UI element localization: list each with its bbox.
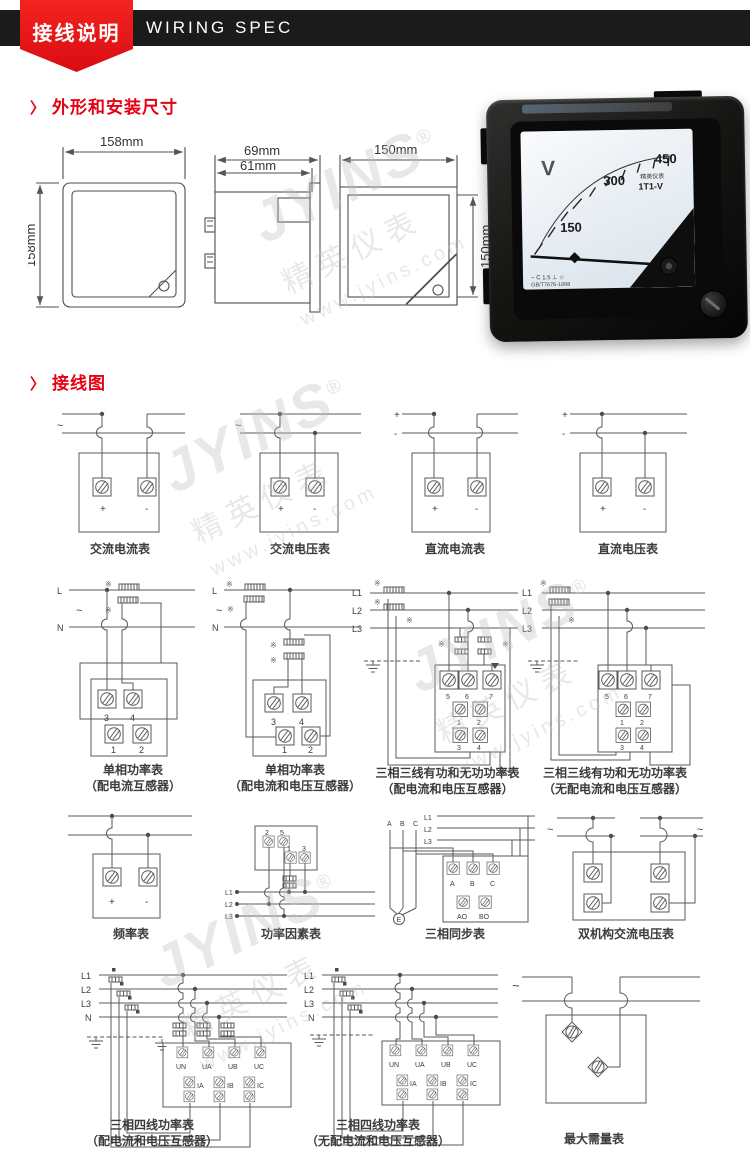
caption-line1: 三相四线功率表 [77, 1117, 227, 1133]
diagram-dual-ac-voltmeter: ~ ~ [545, 812, 710, 935]
line-label: L3 [424, 839, 432, 846]
terminal-number: 7 [489, 694, 493, 701]
header-title-zh: 接线说明 [20, 0, 133, 46]
header-title-en: WIRING SPEC [146, 18, 293, 38]
diagram-frequency-meter: + - [60, 812, 200, 929]
source-label: ~ [547, 824, 553, 836]
star-mark: ※ [105, 580, 112, 589]
panel-meter-photo: V 150 300 450 精英仪表 1T1-V ~ C 1.5 ⊥ ☆ GB/… [486, 96, 748, 342]
caption-line1: 三相三线有功和无功功率表 [360, 765, 535, 781]
terminal-number: 3 [620, 745, 624, 752]
caption-line1: 三相三线有功和无功功率表 [525, 765, 705, 781]
terminal-label: + [109, 897, 115, 908]
terminal-number: 2 [139, 745, 144, 755]
line-label: L2 [522, 606, 532, 616]
diagram-caption: 功率因素表 [221, 926, 361, 942]
terminal-label: B [470, 881, 475, 888]
caption-line2: （无配电流和电压互感器） [525, 781, 705, 797]
terminal-number: 5 [446, 694, 450, 701]
terminal-label: + [432, 504, 438, 515]
terminal-label: UN [176, 1064, 186, 1071]
page: 接线说明 WIRING SPEC 〉外形和安装尺寸 158mm 158mm 69… [0, 0, 750, 1169]
diagram-3p3w-power-ctpt: L1 L2 L3 ※ ※ ※ ※ ※ 5 6 7 1 2 3 4 [350, 575, 525, 780]
line-label: + [562, 410, 568, 421]
line-label: + [394, 410, 400, 421]
caption-line1: 三相四线功率表 [303, 1117, 453, 1133]
terminal-label: IA [410, 1081, 417, 1088]
star-mark: ※ [568, 616, 575, 625]
dims-title-text: 外形和安装尺寸 [52, 98, 178, 117]
star-mark: ※ [374, 579, 381, 588]
terminal-label: UN [389, 1062, 399, 1069]
phase-label: A [387, 821, 392, 828]
star-mark: ※ [502, 640, 509, 649]
line-label: L1 [81, 971, 91, 981]
terminal-label: AO [457, 914, 468, 921]
diagram-caption: 直流电压表 [563, 541, 693, 557]
dim-side-depth: 69mm [244, 143, 280, 158]
wiring-title-text: 接线图 [52, 374, 106, 393]
star-mark: ※ [406, 616, 413, 625]
terminal-label: IC [257, 1083, 264, 1090]
terminal-number: 4 [299, 717, 304, 727]
terminal-number: 4 [130, 713, 135, 723]
source-label: ~ [697, 824, 703, 836]
source-label: ~ [76, 605, 82, 617]
terminal-label: IB [440, 1081, 447, 1088]
diagram-caption: 直流电流表 [390, 541, 520, 557]
diagram-caption: 双机构交流电压表 [545, 926, 707, 942]
line-label: L2 [81, 985, 91, 995]
terminal-label: + [100, 504, 106, 515]
line-label: L2 [352, 606, 362, 616]
diagram-caption: 三相三线有功和无功功率表 （配电流和电压互感器） [360, 765, 535, 797]
terminal-label: UC [467, 1062, 477, 1069]
line-label: L [212, 586, 217, 596]
diagram-sync-meter: A B C E L1 L2 L3 A B C AO BO [385, 812, 550, 935]
line-label: L1 [304, 971, 314, 981]
caption-line2: （无配电流和电压互感器） [303, 1133, 453, 1149]
terminal-number: 4 [640, 745, 644, 752]
terminal-number: 2 [477, 720, 481, 727]
line-label: N [57, 623, 64, 633]
line-label: L2 [304, 985, 314, 995]
star-mark: ※ [374, 598, 381, 607]
diagram-1p-power-ctpt: L ~ N ※ ※ ※ ※ 3 4 1 2 [212, 575, 367, 770]
source-label: ~ [235, 420, 241, 432]
star-mark: ※ [540, 579, 547, 588]
line-label: L [57, 586, 62, 596]
terminal-number: 1 [620, 720, 624, 727]
caption-line2: （配电流和电压互感器） [215, 778, 375, 794]
dim-side-body: 61mm [240, 158, 276, 173]
line-label: L2 [424, 827, 432, 834]
dim-front-width: 158mm [100, 135, 143, 149]
terminal-label: - [145, 897, 148, 908]
phase-label: B [400, 821, 405, 828]
line-label: L1 [352, 588, 362, 598]
dimension-drawings: 158mm 158mm 69mm 61mm 150mm 150mm [28, 135, 493, 325]
line-label: L3 [81, 999, 91, 1009]
terminal-label: UC [254, 1064, 264, 1071]
dial-glass [520, 129, 695, 290]
terminal-number: 2 [640, 720, 644, 727]
terminal-label: - [145, 504, 148, 515]
line-label: L3 [225, 914, 233, 921]
diagram-caption: 三相四线功率表 （配电流和电压互感器） [77, 1117, 227, 1149]
diagram-3p3w-power-noctpt: L1 L2 L3 ※ ※ 5 6 7 1 2 3 4 [520, 575, 720, 780]
terminal-label: IA [197, 1083, 204, 1090]
chevron-icon: 〉 [30, 100, 46, 117]
dim-front-height: 158mm [28, 224, 38, 267]
terminal-label: UA [202, 1064, 212, 1071]
terminal-number: 3 [457, 745, 461, 752]
line-label: N [212, 623, 219, 633]
terminal-label: IC [470, 1081, 477, 1088]
diagram-caption: 三相四线功率表 （无配电流和电压互感器） [303, 1117, 453, 1149]
line-label: L1 [522, 588, 532, 598]
terminal-label: IB [227, 1083, 234, 1090]
terminal-label: + [278, 504, 284, 515]
line-label: - [562, 429, 565, 440]
star-mark: ※ [438, 640, 445, 649]
line-label: N [308, 1013, 315, 1023]
terminal-label: UA [415, 1062, 425, 1069]
source-label: ~ [512, 978, 520, 993]
dims-section-title: 〉外形和安装尺寸 [30, 93, 178, 118]
diagram-dc-ammeter: + - + - [392, 405, 524, 545]
earth-label: E [397, 917, 402, 924]
star-mark: ※ [227, 605, 234, 614]
diagram-dc-voltmeter: + - + - [560, 405, 692, 545]
diagram-1p-power-ct: L ~ N ※ ※ 3 4 1 2 [55, 575, 205, 770]
header-ribbon: 接线说明 [20, 0, 133, 72]
star-mark: ※ [270, 656, 277, 665]
line-label: L1 [225, 890, 233, 897]
terminal-label: - [313, 504, 316, 515]
terminal-label: - [475, 504, 478, 515]
chevron-icon: 〉 [30, 376, 46, 393]
line-label: L3 [352, 624, 362, 634]
terminal-label: A [450, 881, 455, 888]
star-mark: ※ [226, 580, 233, 589]
diagram-power-factor-meter: 2 5 1 3 L1 L2 L3 [225, 812, 390, 929]
terminal-number: 5 [605, 694, 609, 701]
terminal-label: UB [441, 1062, 451, 1069]
diagram-caption: 三相同步表 [385, 926, 525, 942]
diagram-caption: 交流电压表 [235, 541, 365, 557]
diagram-ac-ammeter: ~ + - [55, 405, 190, 545]
line-label: L3 [522, 624, 532, 634]
terminal-number: 7 [648, 694, 652, 701]
diagram-caption: 单相功率表 （配电流互感器） [58, 762, 208, 794]
line-label: - [394, 429, 397, 440]
star-mark: ※ [105, 606, 112, 615]
wiring-section-title: 〉接线图 [30, 369, 106, 394]
caption-line2: （配电流互感器） [58, 778, 208, 794]
terminal-number: 3 [104, 713, 109, 723]
diagram-caption: 频率表 [66, 926, 196, 942]
line-label: L2 [225, 902, 233, 909]
terminal-number: 1 [457, 720, 461, 727]
terminal-number: 6 [465, 694, 469, 701]
terminal-label: - [643, 504, 646, 515]
terminal-number: 4 [477, 745, 481, 752]
dim-cutout-width: 150mm [374, 142, 417, 157]
terminal-label: C [490, 881, 495, 888]
terminal-number: 3 [271, 717, 276, 727]
terminal-label: UB [228, 1064, 238, 1071]
diagram-ac-voltmeter: ~ + - [233, 405, 368, 545]
line-label: L3 [304, 999, 314, 1009]
diagram-caption: 交流电流表 [55, 541, 185, 557]
terminal-label: BO [479, 914, 490, 921]
phase-label: C [413, 821, 418, 828]
caption-line2: （配电流和电压互感器） [77, 1133, 227, 1149]
terminal-number: 1 [282, 745, 287, 755]
terminal-label: + [600, 504, 606, 515]
star-mark: ※ [270, 641, 277, 650]
meter-dial: V 150 300 450 精英仪表 1T1-V ~ C 1.5 ⊥ ☆ GB/… [520, 129, 695, 290]
line-label: N [85, 1013, 92, 1023]
caption-line2: （配电流和电压互感器） [360, 781, 535, 797]
terminal-number: 1 [111, 745, 116, 755]
source-label: ~ [216, 605, 222, 617]
watermark-reg: ® [322, 373, 348, 401]
diagram-caption: 三相三线有功和无功功率表 （无配电流和电压互感器） [525, 765, 705, 797]
source-label: ~ [57, 420, 63, 432]
diagram-caption: 最大需量表 [519, 1131, 669, 1147]
caption-line1: 单相功率表 [58, 762, 208, 778]
line-label: L1 [424, 815, 432, 822]
terminal-number: 2 [308, 745, 313, 755]
diagram-max-demand-meter: ~ [510, 955, 710, 1130]
terminal-number: 6 [624, 694, 628, 701]
